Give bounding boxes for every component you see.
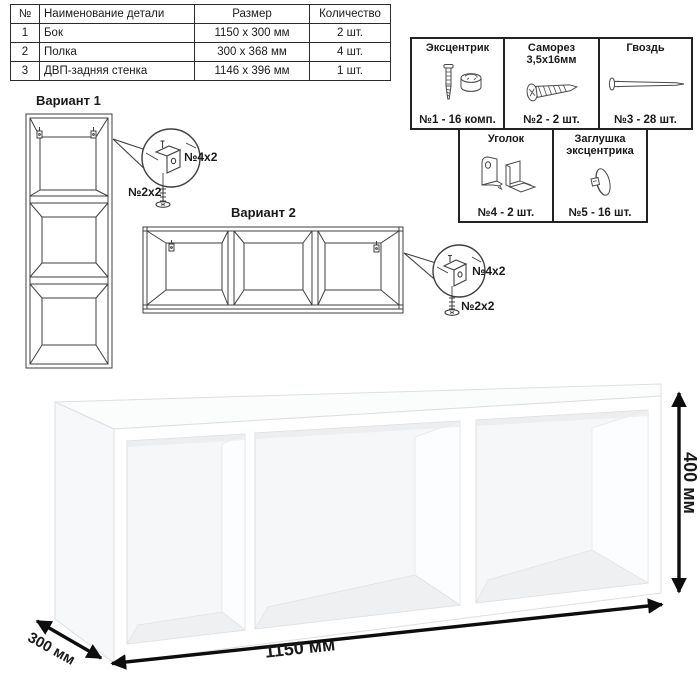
hardware-cell-eccentric: Эксцентрик №1 - 16 комп. xyxy=(410,37,505,130)
header-part-name: Наименование детали xyxy=(40,5,195,24)
shelf-compartment-2 xyxy=(255,421,460,629)
parts-table-row: 1 Бок 1150 x 300 мм 2 шт. xyxy=(11,24,391,43)
screw-icon xyxy=(521,74,583,106)
hardware-count: №1 - 16 комп. xyxy=(419,114,496,126)
hardware-count: №4 - 2 шт. xyxy=(478,207,534,219)
header-size: Размер xyxy=(195,5,310,24)
part-size: 1150 x 300 мм xyxy=(195,24,310,43)
header-quantity: Количество xyxy=(310,5,391,24)
part-size: 1146 x 396 мм xyxy=(195,62,310,81)
hardware-cell-screw: Саморез 3,5х16мм №2 - 2 шт. xyxy=(503,37,600,130)
variant1-screw-label: №2х2 xyxy=(128,185,161,199)
corner-bracket-icon xyxy=(473,153,539,199)
header-number: № xyxy=(11,5,40,24)
hardware-cell-nail: Гвоздь №3 - 28 шт. xyxy=(598,37,693,130)
shelf-compartment-1 xyxy=(127,434,245,644)
shelf-compartment-3 xyxy=(476,410,648,603)
hardware-title: Саморез xyxy=(527,42,577,54)
part-number: 3 xyxy=(11,62,40,81)
variant2-bracket-marks xyxy=(169,240,379,252)
variant1-drawing xyxy=(26,114,112,368)
cam-cover-icon xyxy=(580,162,620,202)
hardware-count: №5 - 16 шт. xyxy=(569,207,632,219)
part-name: ДВП-задняя стенка xyxy=(40,62,195,81)
variant2-bracket-label: №4х2 xyxy=(472,264,505,278)
variant1-title: Вариант 1 xyxy=(36,93,101,108)
hardware-subtitle: эксцентрика xyxy=(566,145,634,157)
hardware-title: Уголок xyxy=(488,133,524,145)
variant1-bracket-label: №4х2 xyxy=(184,150,217,164)
part-number: 1 xyxy=(11,24,40,43)
parts-table-header-row: № Наименование детали Размер Количество xyxy=(11,5,391,24)
part-size: 300 x 368 мм xyxy=(195,43,310,62)
hardware-count: №2 - 2 шт. xyxy=(523,114,579,126)
part-quantity: 1 шт. xyxy=(310,62,391,81)
hardware-count: №3 - 28 шт. xyxy=(614,114,677,126)
hardware-cell-bracket: Уголок №4 - 2 шт. xyxy=(458,128,554,223)
parts-table: № Наименование детали Размер Количество … xyxy=(10,4,391,81)
parts-table-row: 3 ДВП-задняя стенка 1146 x 396 мм 1 шт. xyxy=(11,62,391,81)
eccentric-cam-icon xyxy=(429,63,487,105)
hardware-title: Заглушка xyxy=(566,133,634,145)
hardware-title: Эксцентрик xyxy=(426,42,489,54)
parts-table-row: 2 Полка 300 x 368 мм 4 шт. xyxy=(11,43,391,62)
hardware-cell-cap: Заглушка эксцентрика №5 - 16 шт. xyxy=(552,128,648,223)
hardware-title: Гвоздь xyxy=(626,42,664,54)
variant2-screw-label: №2х2 xyxy=(461,299,494,313)
nail-icon xyxy=(604,69,688,99)
height-dimension-label: 400 мм xyxy=(680,443,700,523)
variant2-callout-screw xyxy=(445,295,459,315)
part-number: 2 xyxy=(11,43,40,62)
variant1-bracket-marks xyxy=(37,127,96,138)
part-name: Полка xyxy=(40,43,195,62)
variant2-title: Вариант 2 xyxy=(231,205,296,220)
part-quantity: 2 шт. xyxy=(310,24,391,43)
hardware-subtitle: 3,5х16мм xyxy=(527,54,577,66)
variant2-drawing xyxy=(143,227,403,313)
part-name: Бок xyxy=(40,24,195,43)
assembly-instruction-sheet: № Наименование детали Размер Количество … xyxy=(0,0,700,690)
part-quantity: 4 шт. xyxy=(310,43,391,62)
shelf-3d-render xyxy=(55,384,661,663)
